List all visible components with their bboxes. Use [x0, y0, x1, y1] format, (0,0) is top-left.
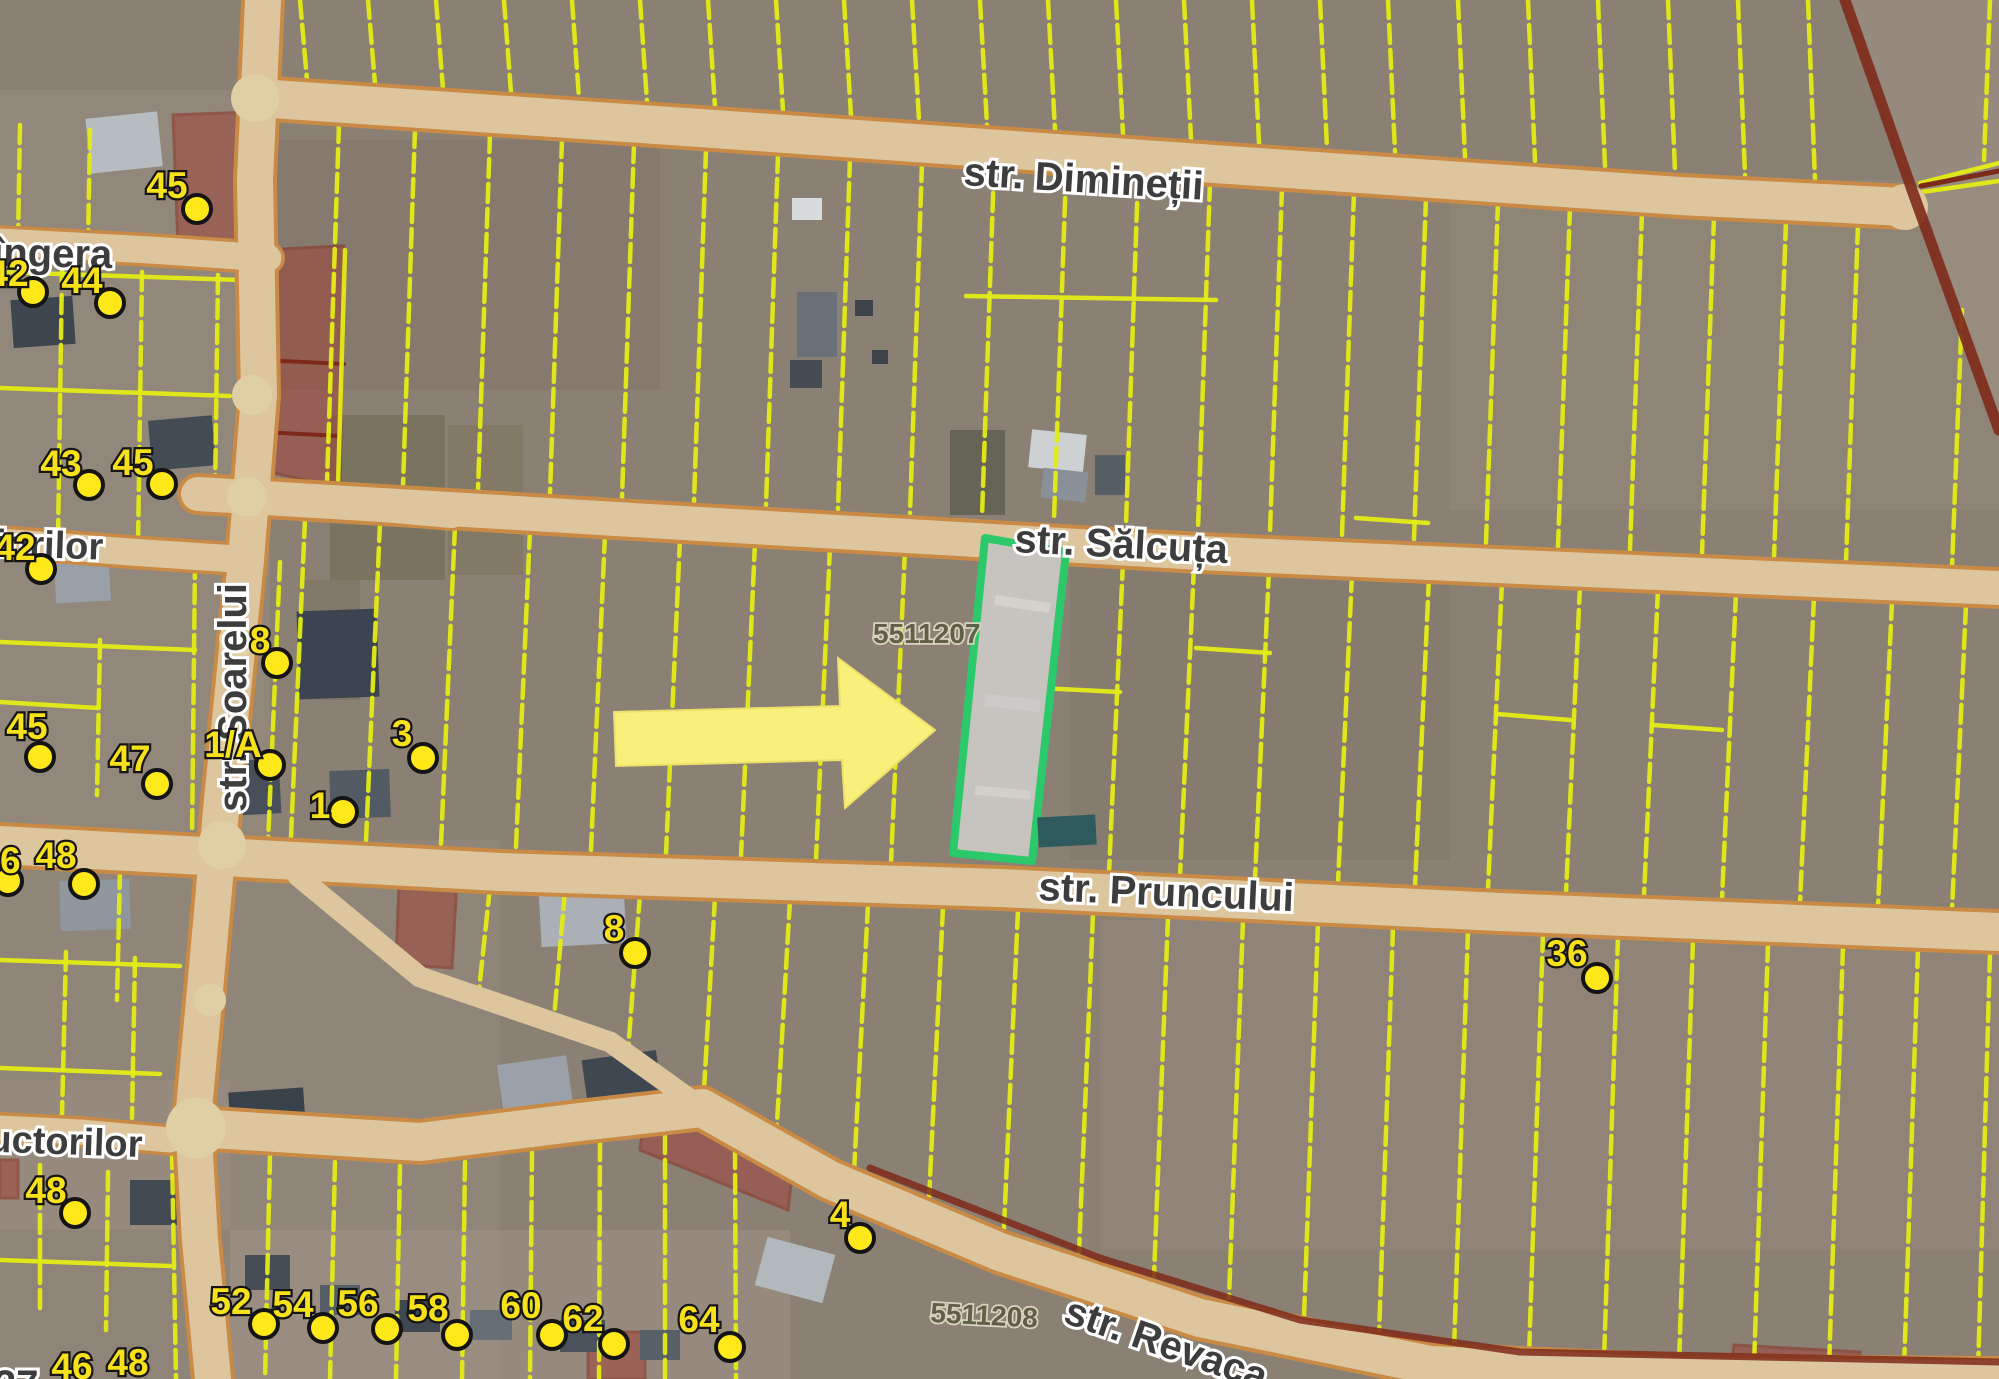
- house-number-marker[interactable]: [409, 744, 437, 772]
- house-number-label: 46: [51, 1346, 92, 1379]
- house-number-label: 44: [61, 260, 103, 301]
- house-number-label: 8: [250, 620, 271, 661]
- house-number-label: 48: [25, 1170, 66, 1211]
- house-number-label: 64: [678, 1299, 720, 1340]
- house-number-label: 1/A: [204, 724, 262, 765]
- house-number-label: 43: [40, 443, 81, 484]
- house-number-label: 56: [337, 1283, 378, 1324]
- house-number-label: 46: [0, 840, 21, 881]
- cadastral-number-5511208: 5511208: [930, 1297, 1039, 1334]
- house-number-label: 42: [0, 253, 29, 294]
- house-number-label: 48: [35, 835, 76, 876]
- house-number-label: 62: [562, 1298, 603, 1339]
- house-number-marker[interactable]: [716, 1333, 744, 1361]
- house-number-label: 54: [272, 1284, 314, 1325]
- house-number-label: 4: [830, 1194, 851, 1235]
- satellite-map[interactable]: str. Dimineții str. Sălcuța str. Pruncul…: [0, 0, 1999, 1379]
- house-number-label: 60: [500, 1285, 541, 1326]
- house-number-label: 42: [0, 527, 36, 568]
- corner-partial-label: 37: [0, 1363, 39, 1379]
- house-number-label: 45: [146, 165, 187, 206]
- house-number-label: 52: [210, 1281, 251, 1322]
- house-number-label: 36: [1546, 933, 1587, 974]
- map-canvas[interactable]: str. Dimineții str. Sălcuța str. Pruncul…: [0, 0, 1999, 1379]
- house-number-marker[interactable]: [26, 743, 54, 771]
- house-number-marker[interactable]: [621, 939, 649, 967]
- house-number-label: 47: [109, 738, 150, 779]
- house-number-label: 45: [6, 706, 47, 747]
- house-number-marker[interactable]: [329, 798, 357, 826]
- house-number-label: 48: [107, 1342, 148, 1379]
- street-label-constructorilor-partial: uctorilor: [0, 1119, 143, 1166]
- house-number-label: 3: [392, 713, 413, 754]
- house-number-label: 58: [407, 1288, 448, 1329]
- house-number-marker[interactable]: [600, 1330, 628, 1358]
- cadastral-number-5511207: 5511207: [873, 618, 980, 649]
- street-label-soarelui: str. Soarelui: [211, 583, 255, 812]
- house-number-label: 8: [604, 908, 625, 949]
- teal-building: [1037, 815, 1096, 848]
- house-number-label: 45: [112, 442, 153, 483]
- house-number-label: 1: [310, 785, 331, 826]
